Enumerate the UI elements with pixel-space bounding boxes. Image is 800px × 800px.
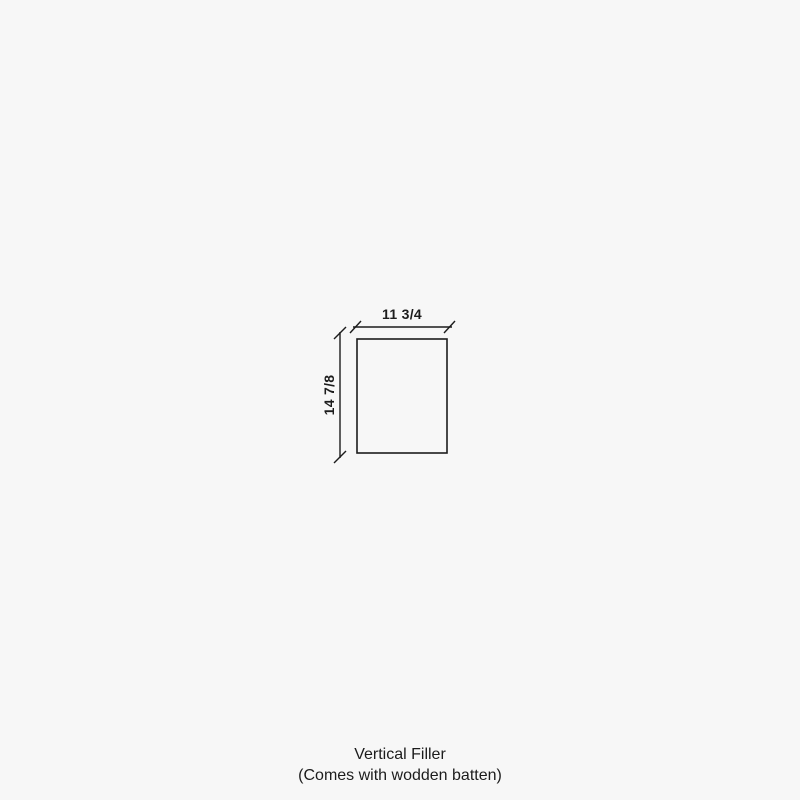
caption-title: Vertical Filler	[0, 744, 800, 765]
product-dimension-diagram: 11 3/4 14 7/8 Vertical Filler (Comes wit…	[0, 0, 800, 800]
caption-subtitle: (Comes with wodden batten)	[0, 765, 800, 786]
diagram-canvas	[0, 0, 800, 800]
diagram-caption: Vertical Filler (Comes with wodden batte…	[0, 744, 800, 786]
height-dimension-label: 14 7/8	[321, 375, 337, 416]
width-dimension-label: 11 3/4	[382, 306, 422, 322]
part-outline-rect	[357, 339, 447, 453]
